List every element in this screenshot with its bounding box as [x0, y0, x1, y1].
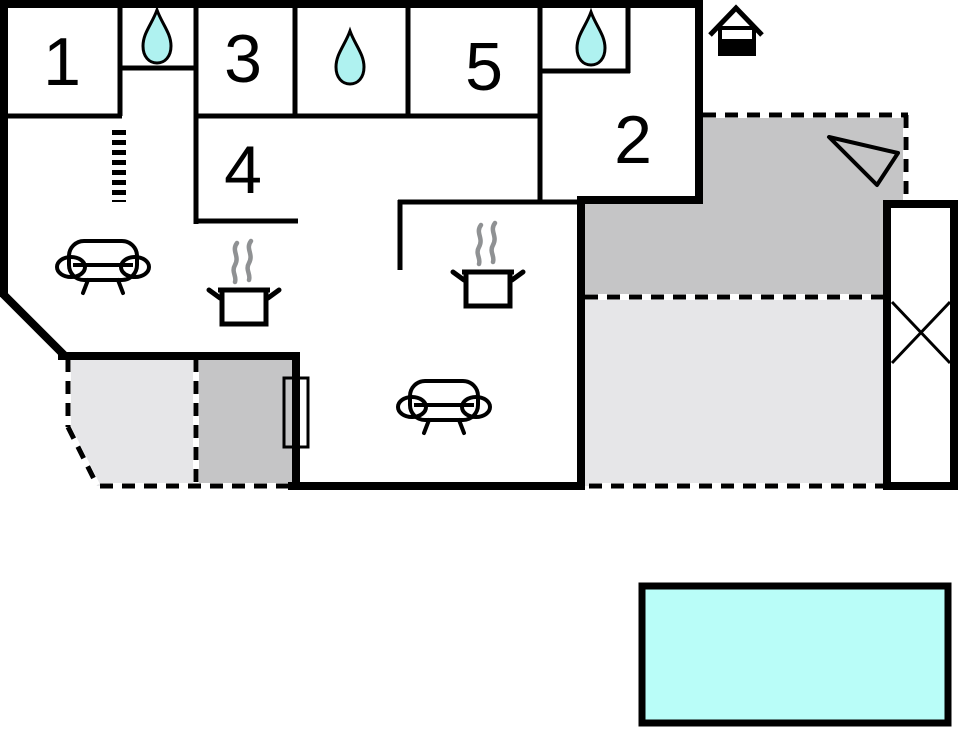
annex-cross-icon [892, 302, 950, 363]
water-drop-icon [336, 31, 364, 84]
well-icon [710, 8, 762, 54]
room-label-1: 1 [22, 22, 102, 102]
floor-plan: 1 3 4 5 2 [0, 0, 960, 729]
room-label-5: 5 [444, 27, 524, 107]
swimming-pool [642, 586, 948, 723]
water-drop-icon [577, 12, 605, 65]
rear-terrace-light [585, 295, 885, 486]
room-label-4: 4 [203, 130, 283, 210]
floor-plan-svg [0, 0, 960, 729]
room-label-2: 2 [593, 100, 673, 180]
annex [887, 204, 954, 486]
cooking-pot-icon [453, 223, 523, 306]
sofa-icon [398, 381, 490, 433]
sofa-icon [57, 241, 149, 293]
water-drop-icon [143, 10, 171, 63]
front-terrace-dark [196, 357, 296, 486]
room-label-3: 3 [203, 19, 283, 99]
cooking-pot-icon [209, 241, 279, 324]
